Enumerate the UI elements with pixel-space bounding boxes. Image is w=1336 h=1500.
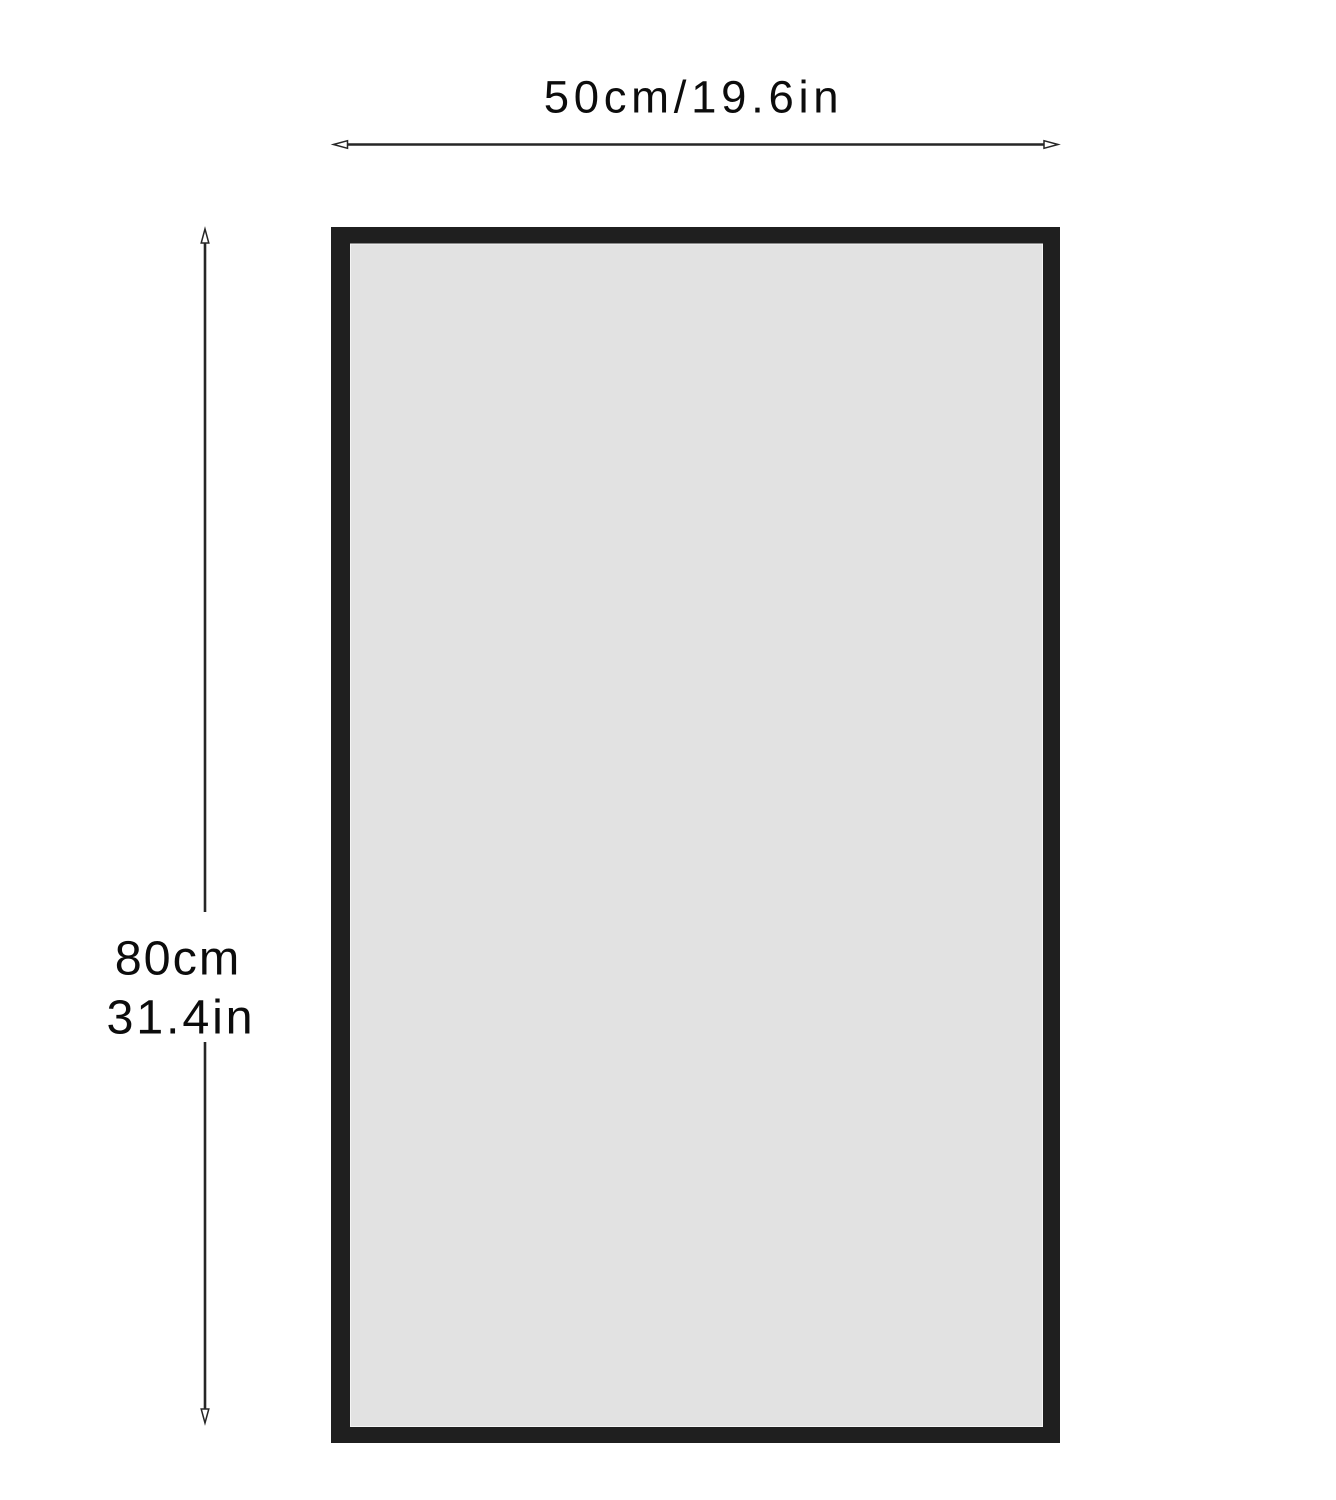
- svg-text:50cm/19.6in: 50cm/19.6in: [544, 72, 844, 123]
- svg-text:31.4in: 31.4in: [107, 991, 256, 1045]
- svg-text:80cm: 80cm: [115, 932, 242, 986]
